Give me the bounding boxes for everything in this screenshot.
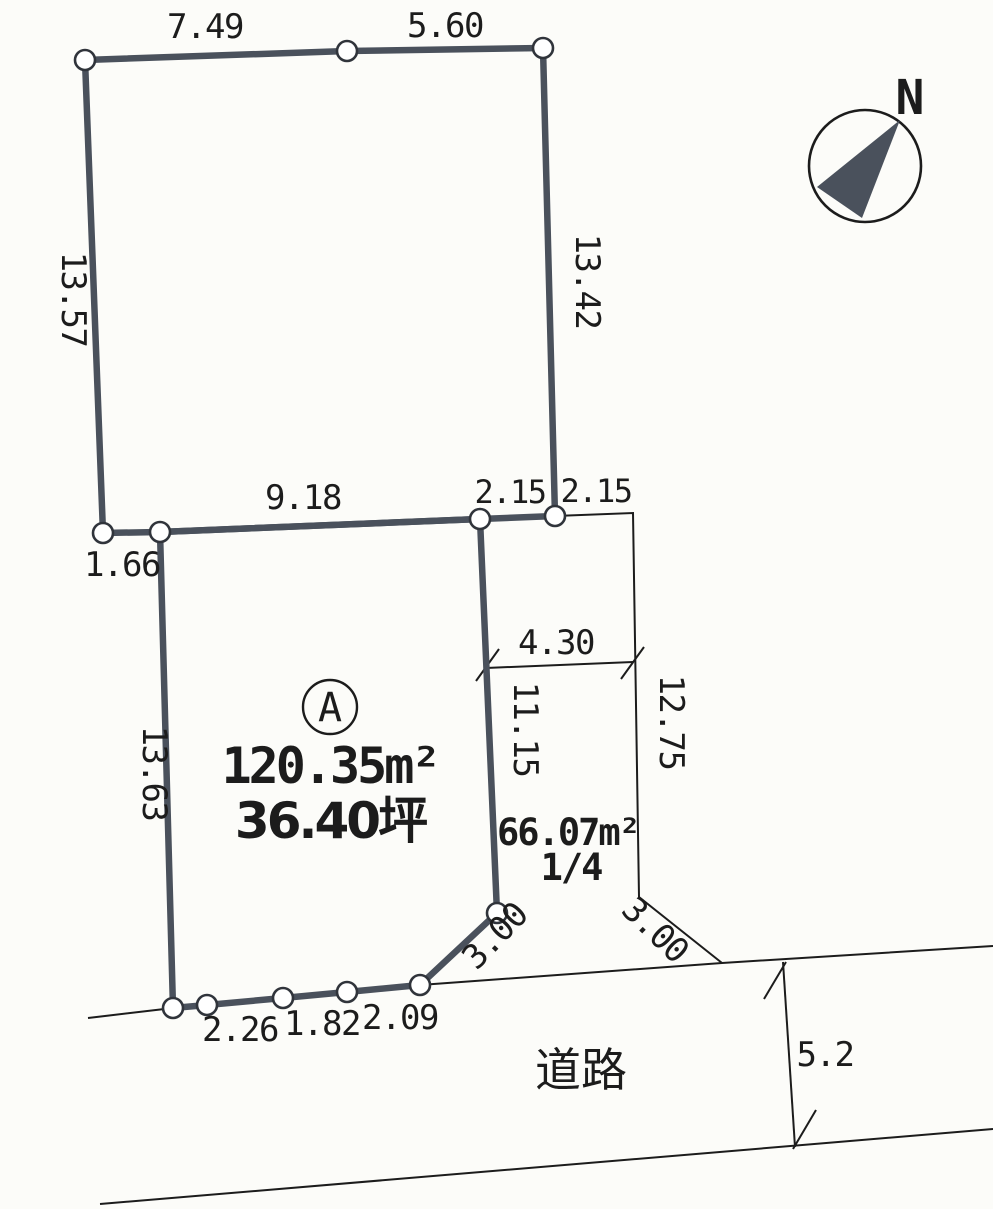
road-label: 道路 [535,1043,627,1097]
vertex-marker [410,975,430,995]
parcel-a-area-tsubo: 36.40坪 [235,792,427,850]
dim-label-11-15: 11.15 [505,682,545,777]
dim-label-3-00-left: 3.00 [454,895,536,977]
dim-label-2-15-right: 2.15 [560,472,631,510]
dim-label-1-66: 1.66 [84,545,160,585]
dim-label-13-57: 13.57 [53,252,93,347]
road-top-edge [88,946,993,1018]
dim-label-2-09: 2.09 [362,998,438,1038]
vertex-marker [337,41,357,61]
shared-parcel-annotation: 66.07m² 1/4 [497,811,639,889]
vertex-marker [150,522,170,542]
vertex-marker [533,38,553,58]
dim-tick-5-2-bottom [793,1110,816,1149]
dim-label-5-2: 5.2 [797,1035,854,1075]
dim-label-1-82: 1.82 [284,1004,360,1044]
dim-tick-5-2-top [764,962,786,999]
north-compass: N [809,70,924,222]
dim-label-4-30: 4.30 [518,623,594,663]
dim-label-2-15-left: 2.15 [474,473,545,511]
vertex-marker [337,982,357,1002]
shared-parcel-share: 1/4 [541,846,603,889]
parcel-a-id-label: A [318,685,342,731]
compass-needle-icon [817,120,900,218]
parcel-a-annotation: A 120.35m² 36.40坪 [222,680,439,850]
dim-label-5-60: 5.60 [407,6,483,46]
dim-label-2-26: 2.26 [202,1010,278,1050]
vertex-marker [93,523,113,543]
dim-label-13-63: 13.63 [134,726,174,821]
dim-label-3-00-right: 3.00 [613,889,695,971]
survey-plot-page: N 7.49 5.60 9.18 2.15 2.15 1.66 4.30 2.2… [0,0,993,1209]
dim-label-9-18: 9.18 [265,478,341,518]
upper-parcel-outline [85,48,555,533]
dim-label-12-75: 12.75 [651,675,691,770]
compass-north-label: N [896,70,925,126]
vertex-marker [75,50,95,70]
dim-line-5-2 [783,962,795,1147]
vertex-marker [163,998,183,1018]
vertex-marker [470,509,490,529]
dim-label-13-42: 13.42 [567,234,607,329]
road-bottom-edge [100,1129,993,1204]
parcel-a-area-m2: 120.35m² [222,737,439,795]
survey-plot-drawing: N 7.49 5.60 9.18 2.15 2.15 1.66 4.30 2.2… [0,0,993,1209]
dim-label-7-49: 7.49 [167,7,243,47]
